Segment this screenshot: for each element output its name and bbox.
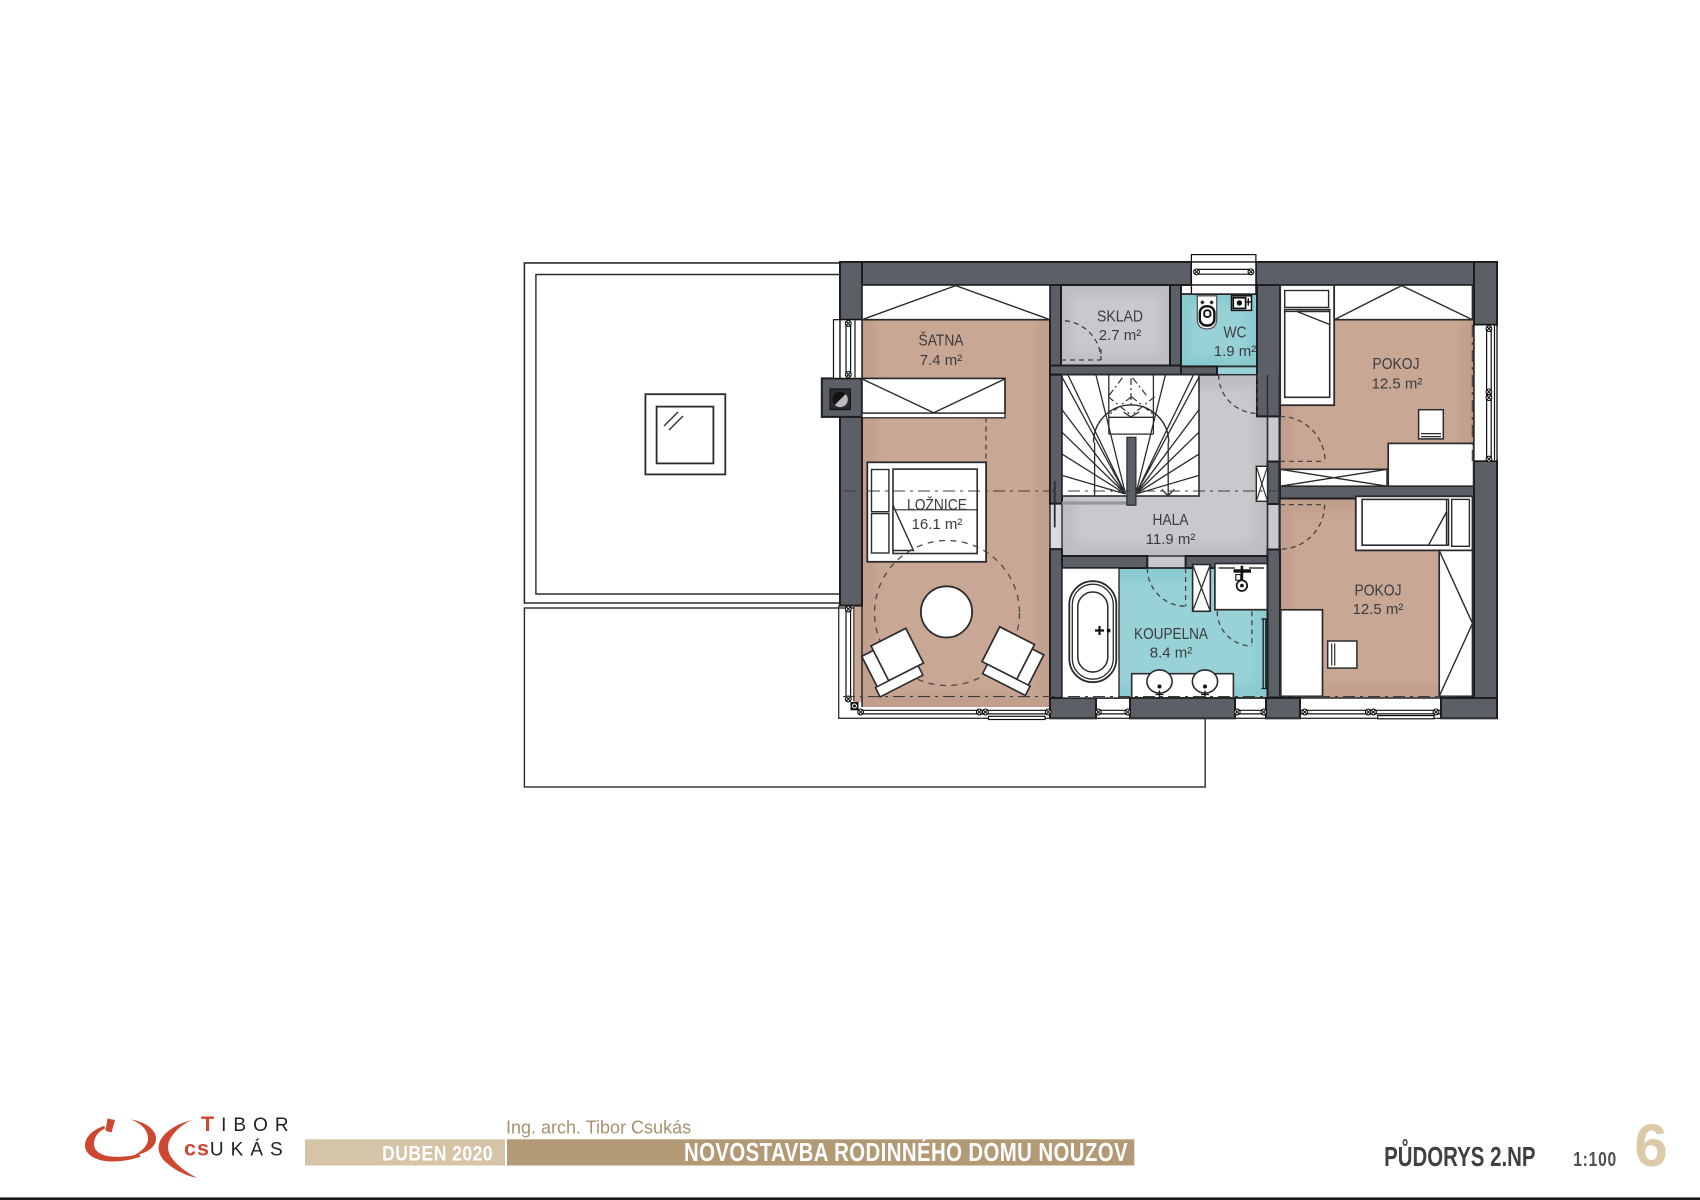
svg-text:LOŽNICE: LOŽNICE [907, 495, 967, 514]
svg-text:8.4 m²: 8.4 m² [1150, 645, 1193, 662]
svg-text:TIBOR: TIBOR [201, 1112, 296, 1136]
svg-text:12.5 m²: 12.5 m² [1372, 376, 1423, 393]
svg-text:1:100: 1:100 [1573, 1148, 1617, 1170]
svg-text:Ing. arch. Tibor Csukás: Ing. arch. Tibor Csukás [506, 1118, 691, 1138]
svg-text:NOVOSTAVBA RODINNÉHO DOMU NOUZ: NOVOSTAVBA RODINNÉHO DOMU NOUZOV [684, 1137, 1128, 1167]
svg-text:POKOJ: POKOJ [1373, 356, 1420, 373]
svg-text:1.9 m²: 1.9 m² [1214, 343, 1257, 360]
svg-text:ŠATNA: ŠATNA [919, 331, 964, 350]
svg-text:2.7 m²: 2.7 m² [1099, 327, 1142, 344]
svg-text:WC: WC [1224, 325, 1247, 342]
svg-text:12.5 m²: 12.5 m² [1353, 601, 1404, 618]
svg-text:16.1 m²: 16.1 m² [912, 516, 963, 533]
svg-text:7.4 m²: 7.4 m² [920, 352, 963, 369]
svg-text:csUKÁS: csUKÁS [184, 1137, 290, 1161]
svg-text:PŮDORYS 2.NP: PŮDORYS 2.NP [1384, 1139, 1535, 1173]
svg-text:POKOJ: POKOJ [1355, 583, 1402, 600]
svg-text:6: 6 [1634, 1112, 1667, 1179]
svg-text:11.9 m²: 11.9 m² [1146, 531, 1196, 548]
svg-text:DUBEN 2020: DUBEN 2020 [382, 1142, 493, 1166]
svg-text:HALA: HALA [1153, 512, 1189, 529]
svg-text:KOUPELNA: KOUPELNA [1134, 626, 1208, 643]
svg-text:SKLAD: SKLAD [1097, 309, 1143, 326]
